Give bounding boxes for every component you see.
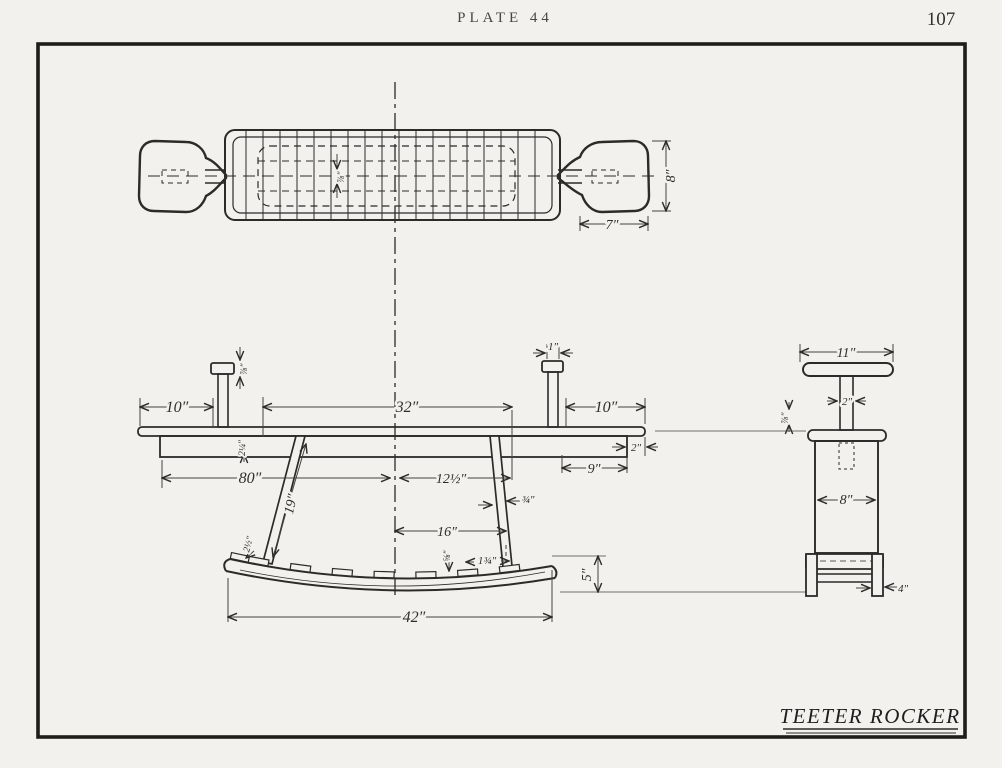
dim-end-post-width: 2″ xyxy=(842,396,853,408)
dim-rail-thickness: 2¼″ xyxy=(237,439,248,456)
technical-drawing: PLATE 44 107 7″ 8″ ⅞″ xyxy=(0,0,1002,768)
dim-handle-width: 11″ xyxy=(837,346,856,361)
dim-cleat-height: ⅝″ xyxy=(443,549,453,561)
dim-center-span: 32″ xyxy=(395,399,419,416)
dim-left-overhang: 10″ xyxy=(166,399,189,416)
lower-rail xyxy=(160,436,627,457)
dim-rocker-tip: 2½″ xyxy=(241,534,256,553)
dim-rocker-rise: 5″ xyxy=(580,568,595,581)
dim-rocker-length: 42″ xyxy=(403,609,426,626)
drawing-title: TEETER ROCKER xyxy=(779,704,960,728)
dim-base-half: 16″ xyxy=(437,525,457,540)
dim-body-width: 8″ xyxy=(840,493,853,508)
dim-seat-lip: ⅞″ xyxy=(781,411,791,423)
plate-label: PLATE 44 xyxy=(457,10,553,26)
top-view-geometry xyxy=(139,130,655,220)
title-block: TEETER ROCKER xyxy=(779,704,960,733)
dim-post-cap: ⅞″ xyxy=(240,362,250,374)
dim-paddle-width: 7″ xyxy=(606,218,619,233)
dim-leg-width: 4″ xyxy=(898,583,909,595)
dim-board-thickness: ⅞″ xyxy=(337,170,347,182)
dim-leg-length: 19″ xyxy=(282,493,301,516)
dim-leg-thickness: ¾″ xyxy=(522,494,535,506)
dim-rail-right: 9″ xyxy=(588,462,601,477)
page-number: 107 xyxy=(927,9,956,30)
dim-cleat-spacing: 1¾″ xyxy=(478,555,497,567)
scanned-plate-page: PLATE 44 107 7″ 8″ ⅞″ xyxy=(0,0,1002,768)
dim-rail-end: 2″ xyxy=(631,442,642,454)
dim-paddle-height: 8″ xyxy=(664,169,679,182)
dim-right-overhang: 10″ xyxy=(595,399,618,416)
seat-plank xyxy=(138,427,645,436)
dim-post-width: 1″ xyxy=(548,341,559,353)
dim-half-span: 12½″ xyxy=(436,472,467,487)
end-handle xyxy=(803,363,893,376)
dim-board-length: 80″ xyxy=(239,470,262,487)
